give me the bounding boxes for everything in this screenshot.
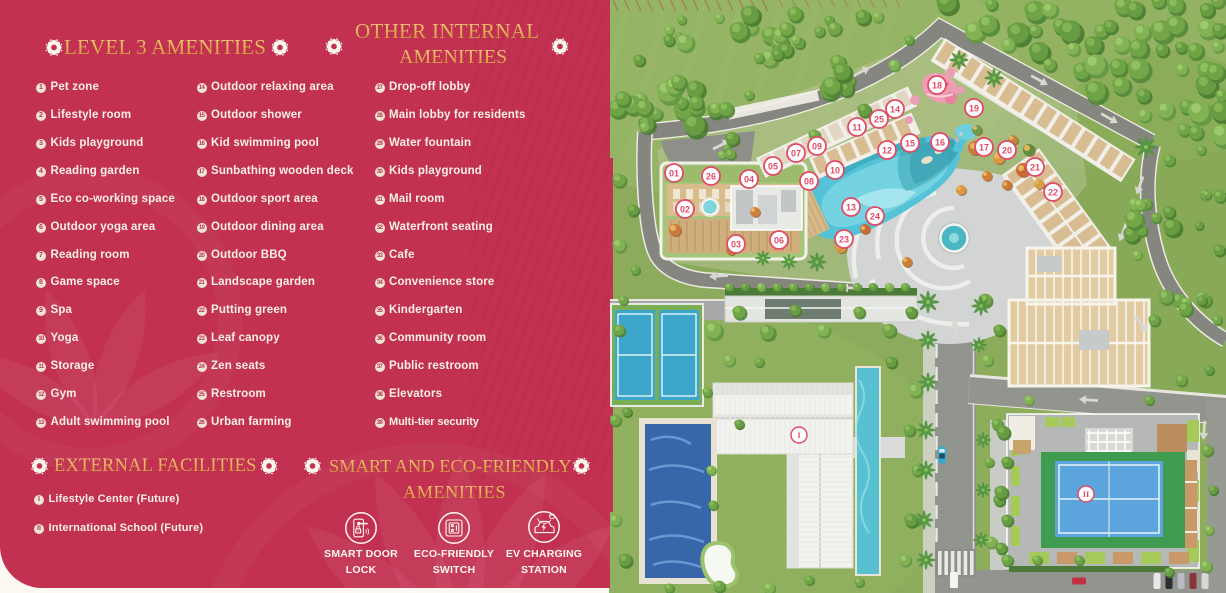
svg-text:20: 20 — [1002, 145, 1012, 155]
svg-text:15: 15 — [905, 138, 915, 148]
svg-text:02: 02 — [680, 204, 690, 214]
svg-text:22: 22 — [1048, 187, 1058, 197]
svg-text:21: 21 — [1030, 162, 1040, 172]
svg-text:07: 07 — [791, 148, 801, 158]
svg-text:04: 04 — [744, 174, 754, 184]
svg-text:19: 19 — [969, 103, 979, 113]
svg-text:05: 05 — [768, 161, 778, 171]
svg-text:03: 03 — [731, 239, 741, 249]
svg-text:26: 26 — [706, 171, 716, 181]
svg-text:08: 08 — [804, 176, 814, 186]
svg-text:13: 13 — [846, 202, 856, 212]
svg-text:24: 24 — [870, 211, 880, 221]
svg-text:23: 23 — [839, 234, 849, 244]
svg-text:25: 25 — [874, 114, 884, 124]
svg-text:II: II — [1083, 489, 1090, 499]
svg-text:01: 01 — [669, 168, 679, 178]
svg-text:12: 12 — [882, 145, 892, 155]
svg-text:09: 09 — [812, 141, 822, 151]
svg-text:10: 10 — [830, 165, 840, 175]
svg-text:16: 16 — [935, 137, 945, 147]
svg-text:14: 14 — [890, 104, 900, 114]
svg-text:11: 11 — [852, 122, 862, 132]
svg-text:18: 18 — [932, 80, 942, 90]
svg-text:06: 06 — [774, 235, 784, 245]
svg-text:17: 17 — [979, 142, 989, 152]
